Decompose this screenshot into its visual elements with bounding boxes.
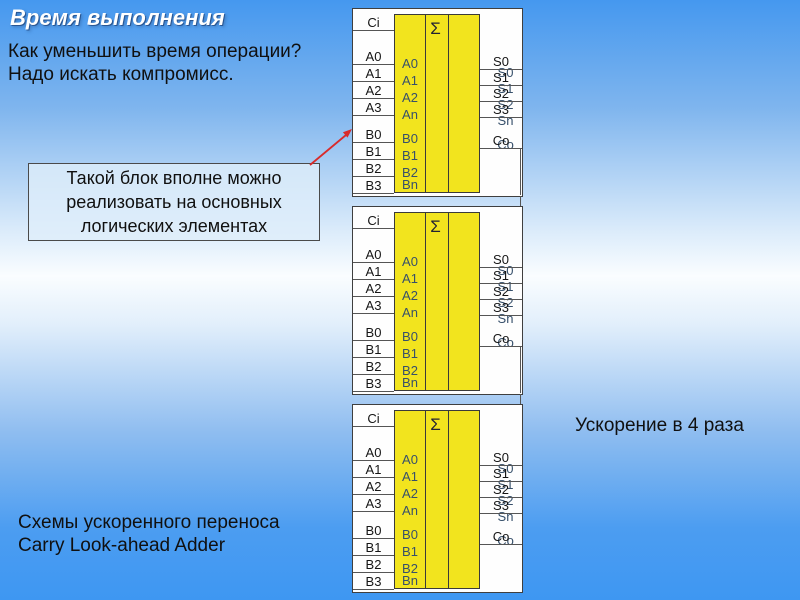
inner-label-a1: A1 [395, 469, 425, 484]
inner-label-a0: A0 [395, 56, 425, 71]
pin-s1: S1 [480, 70, 522, 86]
pin-b3: B3 [353, 178, 394, 194]
divider [425, 213, 426, 390]
divider [448, 213, 449, 390]
pin-b0: B0 [353, 127, 394, 143]
pin-b2: B2 [353, 359, 394, 375]
pin-ci: Ci [353, 213, 394, 229]
pin-s1: S1 [480, 268, 522, 284]
pin-a1: A1 [353, 264, 394, 280]
pin-b2: B2 [353, 557, 394, 573]
pin-a2: A2 [353, 281, 394, 297]
inner-label-a0: A0 [395, 452, 425, 467]
callout-arrow-icon [300, 118, 360, 174]
slide: Время выполнения Как уменьшить время опе… [0, 0, 800, 600]
pin-s3: S3 [480, 300, 522, 316]
inner-label-a1: A1 [395, 73, 425, 88]
inner-label-bn: Bn [395, 573, 425, 588]
footer-line-2: Carry Look-ahead Adder [18, 534, 280, 557]
divider [448, 15, 449, 192]
callout-line-1: Такой блок вполне можно [29, 166, 319, 190]
adder-block: Ci A0 A1 A2 A3 B0 B1 B2 B3 Σ A0 A1 A2 An… [352, 206, 523, 395]
sigma-symbol: Σ [424, 217, 447, 237]
inner-label-b1: B1 [395, 346, 425, 361]
pin-s3: S3 [480, 102, 522, 118]
pin-b2: B2 [353, 161, 394, 177]
inner-label-a0: A0 [395, 254, 425, 269]
carry-gap-wire [520, 394, 521, 404]
pin-s2: S2 [480, 482, 522, 498]
pin-b0: B0 [353, 523, 394, 539]
pin-b3: B3 [353, 376, 394, 392]
inner-label-a2: A2 [395, 486, 425, 501]
pin-co: Co [480, 331, 522, 347]
pin-a0: A0 [353, 49, 394, 65]
callout-line-3: логических элементах [29, 214, 319, 238]
sigma-symbol: Σ [424, 19, 447, 39]
pin-s0: S0 [480, 252, 522, 268]
divider [425, 411, 426, 588]
intro-line-1: Как уменьшить время операции? [8, 40, 301, 63]
pin-a2: A2 [353, 83, 394, 99]
divider [425, 15, 426, 192]
inner-label-an: An [395, 305, 425, 320]
pin-s0: S0 [480, 54, 522, 70]
pin-s2: S2 [480, 86, 522, 102]
carry-down-wire [520, 346, 521, 393]
pin-a3: A3 [353, 298, 394, 314]
pin-a0: A0 [353, 247, 394, 263]
pin-a0: A0 [353, 445, 394, 461]
carry-gap-wire [520, 196, 521, 206]
pin-s2: S2 [480, 284, 522, 300]
sigma-symbol: Σ [424, 415, 447, 435]
pin-a3: A3 [353, 496, 394, 512]
intro-line-2: Надо искать компромисс. [8, 63, 301, 86]
inner-label-a2: A2 [395, 288, 425, 303]
carry-down-wire [520, 148, 521, 195]
inner-label-b1: B1 [395, 148, 425, 163]
pin-b0: B0 [353, 325, 394, 341]
pin-a3: A3 [353, 100, 394, 116]
pin-s0: S0 [480, 450, 522, 466]
callout-line-2: реализовать на основных [29, 190, 319, 214]
inner-label-b0: B0 [395, 131, 425, 146]
pin-b3: B3 [353, 574, 394, 590]
pin-a1: A1 [353, 462, 394, 478]
inner-label-b1: B1 [395, 544, 425, 559]
divider [448, 411, 449, 588]
pin-ci: Ci [353, 15, 394, 31]
inner-label-a1: A1 [395, 271, 425, 286]
adder-block: Ci A0 A1 A2 A3 B0 B1 B2 B3 Σ A0 A1 A2 An… [352, 404, 523, 593]
adder-block: Ci A0 A1 A2 A3 B0 B1 B2 B3 Σ A0 A1 A2 An… [352, 8, 523, 197]
pin-ci: Ci [353, 411, 394, 427]
pin-b1: B1 [353, 540, 394, 556]
inner-label-b0: B0 [395, 329, 425, 344]
callout-box: Такой блок вполне можно реализовать на о… [28, 163, 320, 241]
adder-diagram: Ci A0 A1 A2 A3 B0 B1 B2 B3 Σ A0 A1 A2 An… [352, 0, 532, 600]
pin-s1: S1 [480, 466, 522, 482]
pin-co: Co [480, 529, 522, 545]
pin-s3: S3 [480, 498, 522, 514]
inner-label-bn: Bn [395, 375, 425, 390]
pin-a1: A1 [353, 66, 394, 82]
footer-line-1: Схемы ускоренного переноса [18, 511, 280, 534]
inner-label-a2: A2 [395, 90, 425, 105]
inner-label-an: An [395, 503, 425, 518]
pin-co: Co [480, 133, 522, 149]
pin-a2: A2 [353, 479, 394, 495]
footer-text: Схемы ускоренного переноса Carry Look-ah… [18, 511, 280, 557]
pin-b1: B1 [353, 144, 394, 160]
inner-label-an: An [395, 107, 425, 122]
speedup-note: Ускорение в 4 раза [575, 415, 744, 437]
page-title: Время выполнения [10, 5, 225, 31]
pin-b1: B1 [353, 342, 394, 358]
inner-label-bn: Bn [395, 177, 425, 192]
inner-label-b0: B0 [395, 527, 425, 542]
intro-text: Как уменьшить время операции? Надо искат… [8, 40, 301, 86]
